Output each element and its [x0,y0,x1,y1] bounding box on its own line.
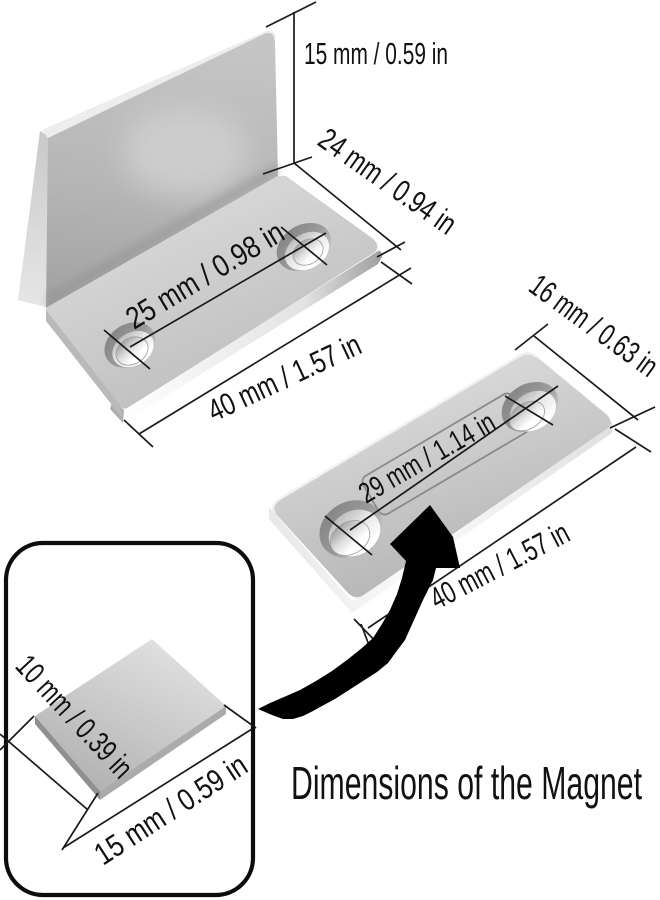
svg-text:Dimensions of the Magnet: Dimensions of the Magnet [291,757,642,809]
svg-text:15 mm / 0.59 in: 15 mm / 0.59 in [304,36,448,71]
